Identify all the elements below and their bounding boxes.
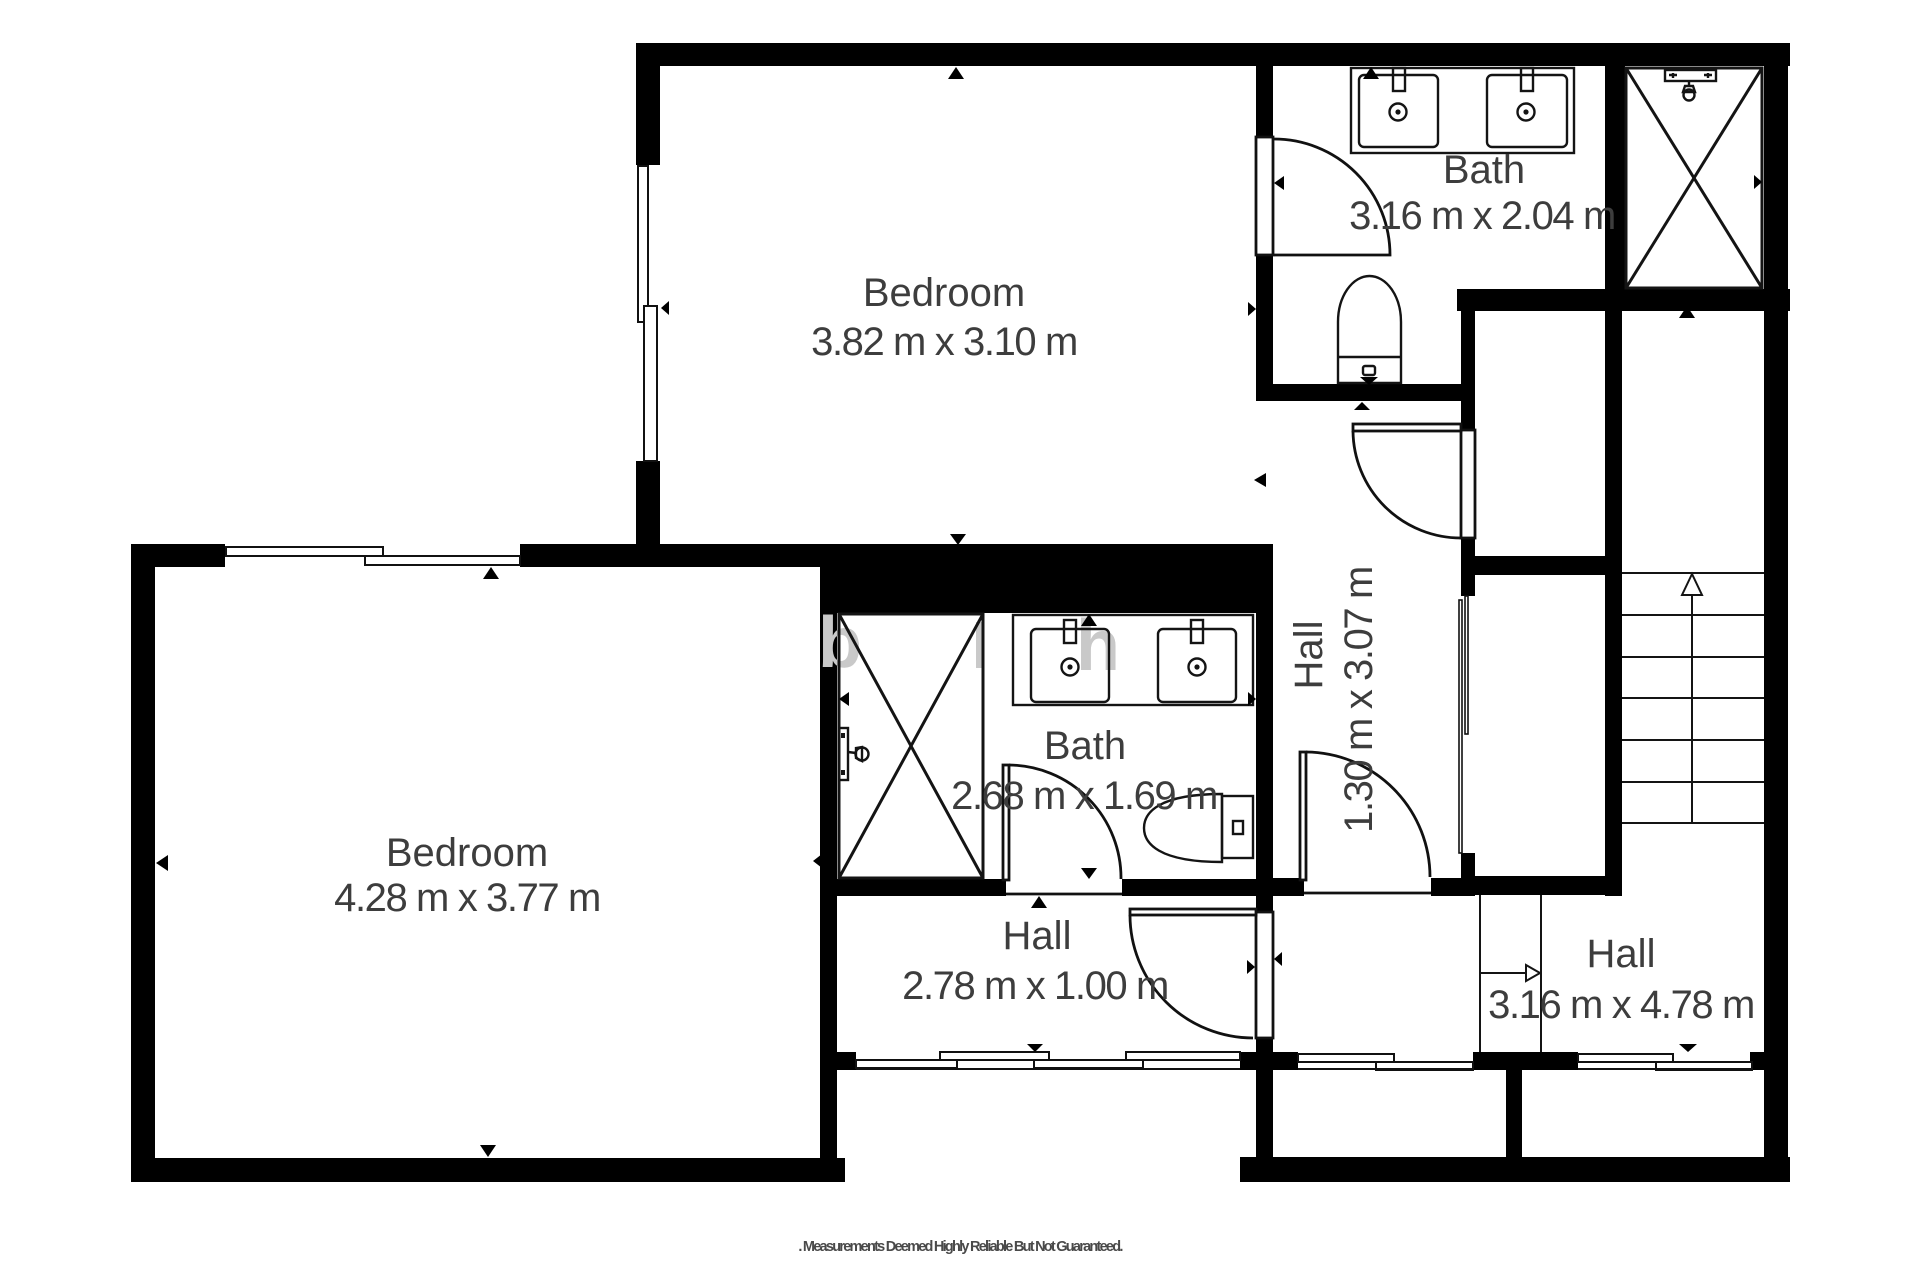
svg-text:h: h	[1076, 606, 1120, 686]
svg-text:Hall: Hall	[1287, 621, 1331, 690]
svg-text:Bedroom: Bedroom	[863, 271, 1025, 315]
svg-text:Bath: Bath	[1443, 148, 1525, 192]
svg-text:4.28 m x 3.77 m: 4.28 m x 3.77 m	[334, 876, 600, 920]
svg-text:3.16 m x 2.04 m: 3.16 m x 2.04 m	[1349, 194, 1615, 238]
svg-text:3.82 m x 3.10 m: 3.82 m x 3.10 m	[811, 320, 1077, 364]
svg-text:1.30 m x 3.07 m: 1.30 m x 3.07 m	[1337, 567, 1381, 833]
svg-text:Hall: Hall	[1587, 932, 1656, 976]
svg-text:Bedroom: Bedroom	[386, 831, 548, 875]
svg-text:2.78 m x 1.00 m: 2.78 m x 1.00 m	[902, 964, 1168, 1008]
svg-text:2.68 m x 1.69 m: 2.68 m x 1.69 m	[951, 774, 1217, 818]
svg-text:Bath: Bath	[1044, 724, 1126, 768]
svg-text:. Measurements Deemed Highly R: . Measurements Deemed Highly Reliable Bu…	[798, 1239, 1123, 1255]
svg-text:Hall: Hall	[1003, 914, 1072, 958]
svg-text:3.16 m x 4.78 m: 3.16 m x 4.78 m	[1488, 983, 1754, 1027]
